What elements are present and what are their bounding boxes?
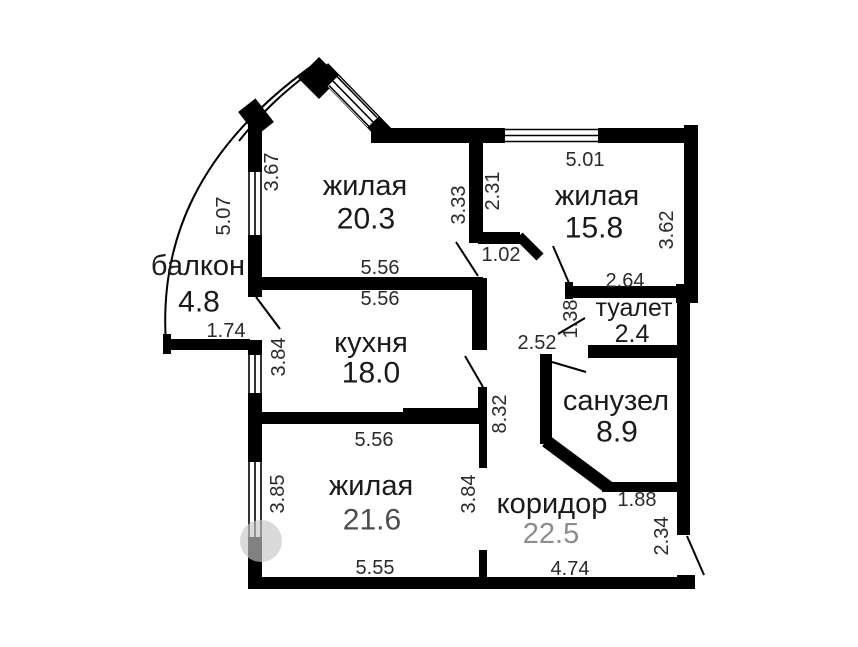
wall-left-segment-2	[248, 235, 262, 297]
door-kitchen	[465, 356, 483, 387]
wall-corner-block-left	[238, 98, 274, 135]
room-label-living2: жилая	[555, 180, 639, 212]
dim-kitchen-top: 5.56	[361, 288, 400, 310]
dim-living1-left-upper: 3.67	[261, 153, 283, 192]
door-living2	[553, 246, 569, 283]
door-living1	[456, 242, 478, 276]
door-entrance	[687, 536, 704, 575]
dim-living3-right: 3.84	[458, 475, 480, 514]
dim-living3-top: 5.56	[355, 429, 394, 451]
dim-living2-entry: 1.02	[482, 244, 521, 266]
dim-living1-bottom: 5.56	[361, 257, 400, 279]
dim-living2-right: 3.62	[656, 211, 678, 250]
dim-corridor-height: 8.32	[489, 395, 511, 434]
wall-right-upper	[684, 125, 698, 303]
room-area-kitchen: 18.0	[342, 357, 400, 390]
room-area-living3: 21.6	[343, 504, 401, 537]
dim-living2-left: 2.31	[482, 172, 504, 211]
room-area-bathroom: 8.9	[596, 416, 638, 449]
wall-bottom	[248, 577, 695, 589]
dim-corridor-upper: 2.52	[518, 332, 557, 354]
wall-living2-entry-angled-stub	[519, 236, 540, 257]
dim-balcony-window: 5.07	[213, 197, 235, 236]
dim-bathroom-bottom: 1.88	[618, 489, 657, 511]
dim-living2-top: 5.01	[566, 149, 605, 171]
dim-toilet-left: 1.38	[560, 300, 582, 339]
wall-kitchen-right-upper	[472, 278, 487, 350]
wall-living1-living2	[469, 143, 483, 243]
room-area-living2: 15.8	[565, 212, 623, 245]
room-area-balcony: 4.8	[178, 286, 220, 319]
floorplan-drawing: балкон 4.8 жилая 20.3 жилая 15.8 кухня 1…	[0, 0, 858, 647]
wall-right-bottom-stub	[677, 575, 695, 588]
room-label-corridor: коридор	[497, 488, 608, 520]
room-label-bathroom: санузел	[563, 385, 669, 417]
windows	[248, 77, 598, 538]
room-label-living3: жилая	[329, 470, 413, 502]
door-bathroom	[552, 362, 586, 372]
room-area-corridor: 22.5	[523, 518, 579, 550]
dim-living3-bottom: 5.55	[356, 557, 395, 579]
floorplan-canvas: балкон 4.8 жилая 20.3 жилая 15.8 кухня 1…	[0, 0, 858, 647]
room-label-kitchen: кухня	[334, 327, 408, 359]
dim-living3-left: 3.85	[267, 475, 289, 514]
room-label-toilet: туалет	[596, 294, 674, 322]
wall-top-right	[598, 128, 698, 143]
wall-left-segment-3	[248, 340, 262, 355]
room-label-balcony: балкон	[151, 250, 245, 282]
room-area-toilet: 2.4	[615, 320, 650, 348]
dim-corridor-bottom: 4.74	[551, 558, 590, 580]
window-kitchen	[248, 355, 262, 393]
wall-living2-entry	[478, 232, 520, 244]
dim-kitchen-left: 3.84	[268, 338, 290, 377]
wall-left-segment-4	[248, 393, 262, 462]
door-balcony	[256, 297, 280, 329]
dim-living1-right: 3.33	[448, 186, 470, 225]
watermark-blob	[240, 520, 282, 562]
wall-living3-corridor-upper	[479, 424, 487, 468]
dim-entrance-wall: 2.34	[651, 517, 673, 556]
room-label-living1: жилая	[323, 170, 407, 202]
wall-kitchen-living3-thick	[403, 408, 487, 424]
dim-balcony-width: 1.74	[207, 320, 246, 342]
wall-living3-corridor-lower	[479, 550, 487, 577]
window-living2-top	[505, 128, 598, 143]
dim-living2-bottom: 2.64	[606, 270, 645, 292]
window-living1	[248, 172, 262, 235]
wall-bathroom-left	[540, 354, 552, 444]
room-area-living1: 20.3	[337, 203, 395, 236]
wall-right-lower	[677, 303, 690, 535]
window-diagonal	[329, 77, 377, 127]
